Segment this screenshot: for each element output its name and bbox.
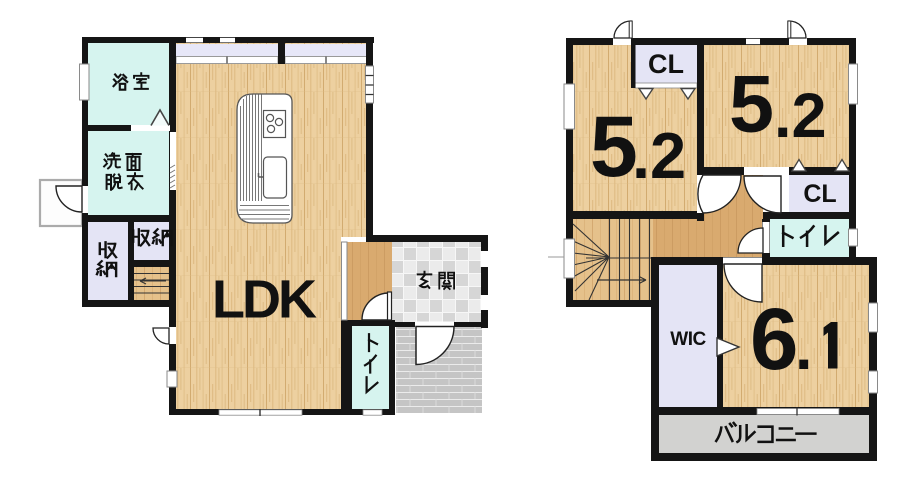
svg-text:.2: .2 — [774, 81, 827, 151]
svg-text:.2: .2 — [632, 119, 686, 192]
svg-text:6: 6 — [750, 291, 798, 388]
svg-text:CL: CL — [803, 180, 836, 208]
svg-text:WIC: WIC — [670, 329, 706, 350]
svg-text:.: . — [795, 313, 813, 383]
svg-text:5: 5 — [729, 60, 774, 150]
svg-text:5: 5 — [590, 99, 638, 195]
svg-text:LDK: LDK — [212, 270, 317, 330]
svg-text:CL: CL — [648, 49, 684, 79]
